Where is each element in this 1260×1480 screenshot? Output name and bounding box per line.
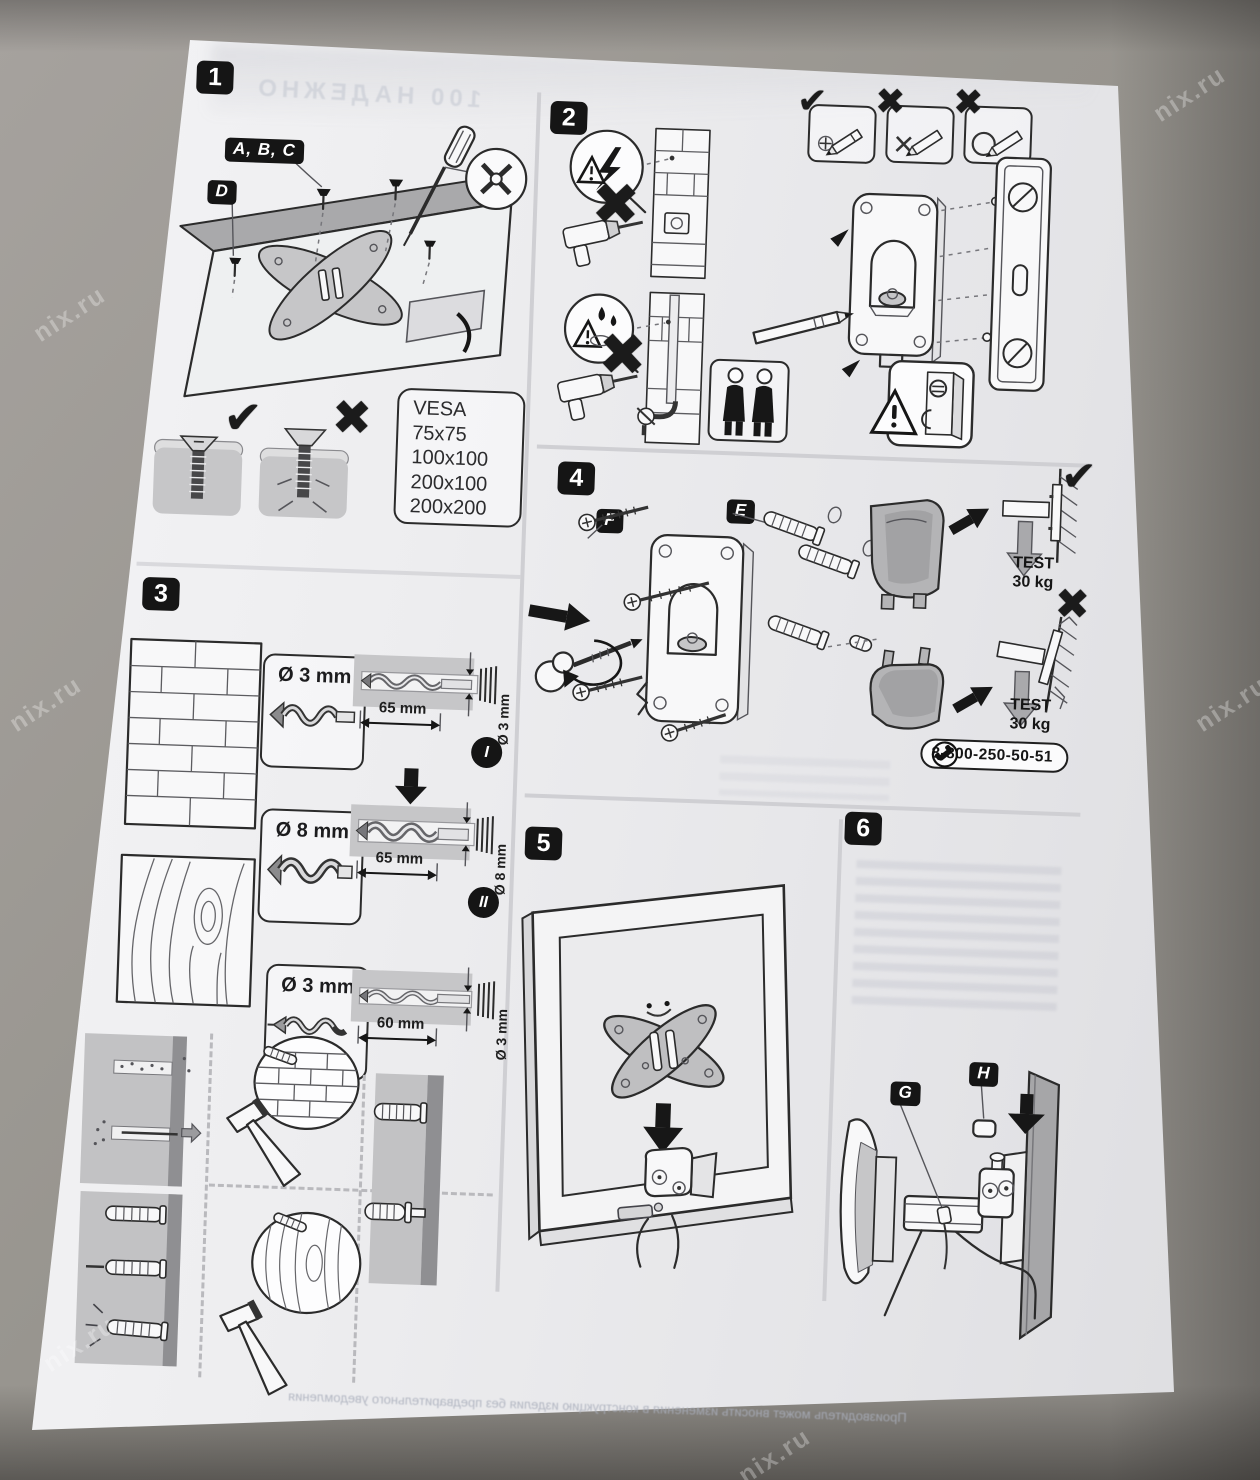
cross-icon: ✖: [590, 174, 641, 234]
vesa-title: VESA: [413, 396, 524, 424]
support-phone-pill: 8-800-250-50-51: [920, 738, 1069, 773]
label-g-chip: G: [890, 1081, 921, 1106]
brick-wall-icon: [123, 637, 262, 830]
watermark: nix.ru: [1149, 61, 1232, 129]
phone-icon: [931, 740, 959, 768]
bleedthrough-text-block: [719, 755, 890, 801]
phillips-bit-inset: [465, 148, 527, 210]
vesa-size: 200x200: [409, 494, 520, 522]
drill-diameter-label: Ø 3 mm: [264, 663, 365, 689]
depth-label: 60 mm: [364, 1014, 437, 1034]
masonry-drill-bit-icon: [268, 692, 357, 739]
photo-scene: 1 100 НАДЕЖНО: [0, 0, 1260, 1480]
step-6-badge: 6: [844, 812, 882, 846]
cross-icon: ✖: [331, 393, 373, 442]
watermark: nix.ru: [1191, 671, 1260, 739]
cover-parts: [863, 495, 1005, 731]
vesa-sizes-box: VESA 75x75 100x100 200x100 200x200: [393, 388, 526, 528]
two-person-lift-box: [707, 359, 790, 444]
check-icon: ✔: [223, 394, 263, 441]
step-3-badge: 3: [142, 577, 180, 611]
label-h-chip: H: [969, 1062, 999, 1087]
depth-label: 65 mm: [363, 849, 436, 869]
arrow-down-icon: [1020, 1094, 1034, 1114]
cross-icon: ✖: [597, 325, 648, 385]
label-abc-chip: A, B, C: [225, 137, 305, 164]
step-1-badge: 1: [196, 60, 234, 94]
test-load-label: TEST30 kg: [1009, 695, 1051, 734]
spirit-level-icon: [985, 154, 1055, 394]
bleedthrough-top-text: 100 НАДЕЖНО: [252, 74, 481, 114]
cable-tie: [937, 1206, 952, 1224]
bleedthrough-text-block: [852, 860, 1062, 1012]
depth-label: 65 mm: [366, 699, 439, 719]
warning-door-box: [869, 358, 976, 450]
divider-p1-p3: [136, 562, 520, 579]
test-load-label: TEST30 kg: [1012, 553, 1054, 592]
arm-side-view-illustration: [826, 1057, 1072, 1347]
hammer-icon: [220, 1299, 296, 1398]
vesa-size: 100x100: [411, 445, 522, 473]
two-persons-icon: [709, 361, 788, 442]
tv-back-mounting-illustration: [168, 108, 533, 410]
watermark: nix.ru: [734, 1423, 817, 1480]
wall-bracket-marking-illustration: [729, 173, 1030, 387]
label-d-chip: D: [207, 180, 237, 205]
cap-part: [973, 1120, 996, 1137]
cross-icon: ✖: [1054, 583, 1091, 626]
cross-icon: ✖: [953, 85, 984, 122]
instruction-sheet-content: 1 100 НАДЕЖНО: [137, 36, 1109, 1439]
wood-wall-icon: [115, 853, 256, 1008]
masonry-drill-bit-icon: [265, 847, 354, 894]
hole-cleaning-illustration: [80, 1033, 204, 1197]
hammer-brick-illustration: [211, 1028, 366, 1183]
tv-hanging-illustration: [505, 858, 840, 1261]
hammer-wood-illustration: [208, 1188, 367, 1383]
dowel-insertion-illustration: [74, 1191, 198, 1377]
wall-plugs: [757, 503, 885, 653]
check-icon: ✔: [1060, 455, 1097, 498]
arrow-down-icon: [655, 1103, 671, 1128]
step-5-badge: 5: [524, 826, 562, 860]
pencil-icon: [753, 309, 853, 344]
hook-bracket: [644, 1147, 716, 1198]
bleedthrough-footer-text: Производитель может вносить изменения в …: [177, 1385, 1017, 1429]
drill-diameter-label: Ø 8 mm: [262, 818, 363, 844]
watermark: nix.ru: [29, 281, 112, 349]
hole-diameter-label: Ø 3 mm: [492, 1005, 510, 1064]
watermark: nix.ru: [5, 671, 88, 739]
check-icon: ✔: [796, 83, 827, 120]
cross-icon: ✖: [874, 84, 905, 121]
dowel-flush-illustration: [362, 1073, 498, 1295]
arrow-right-icon: [527, 596, 593, 634]
